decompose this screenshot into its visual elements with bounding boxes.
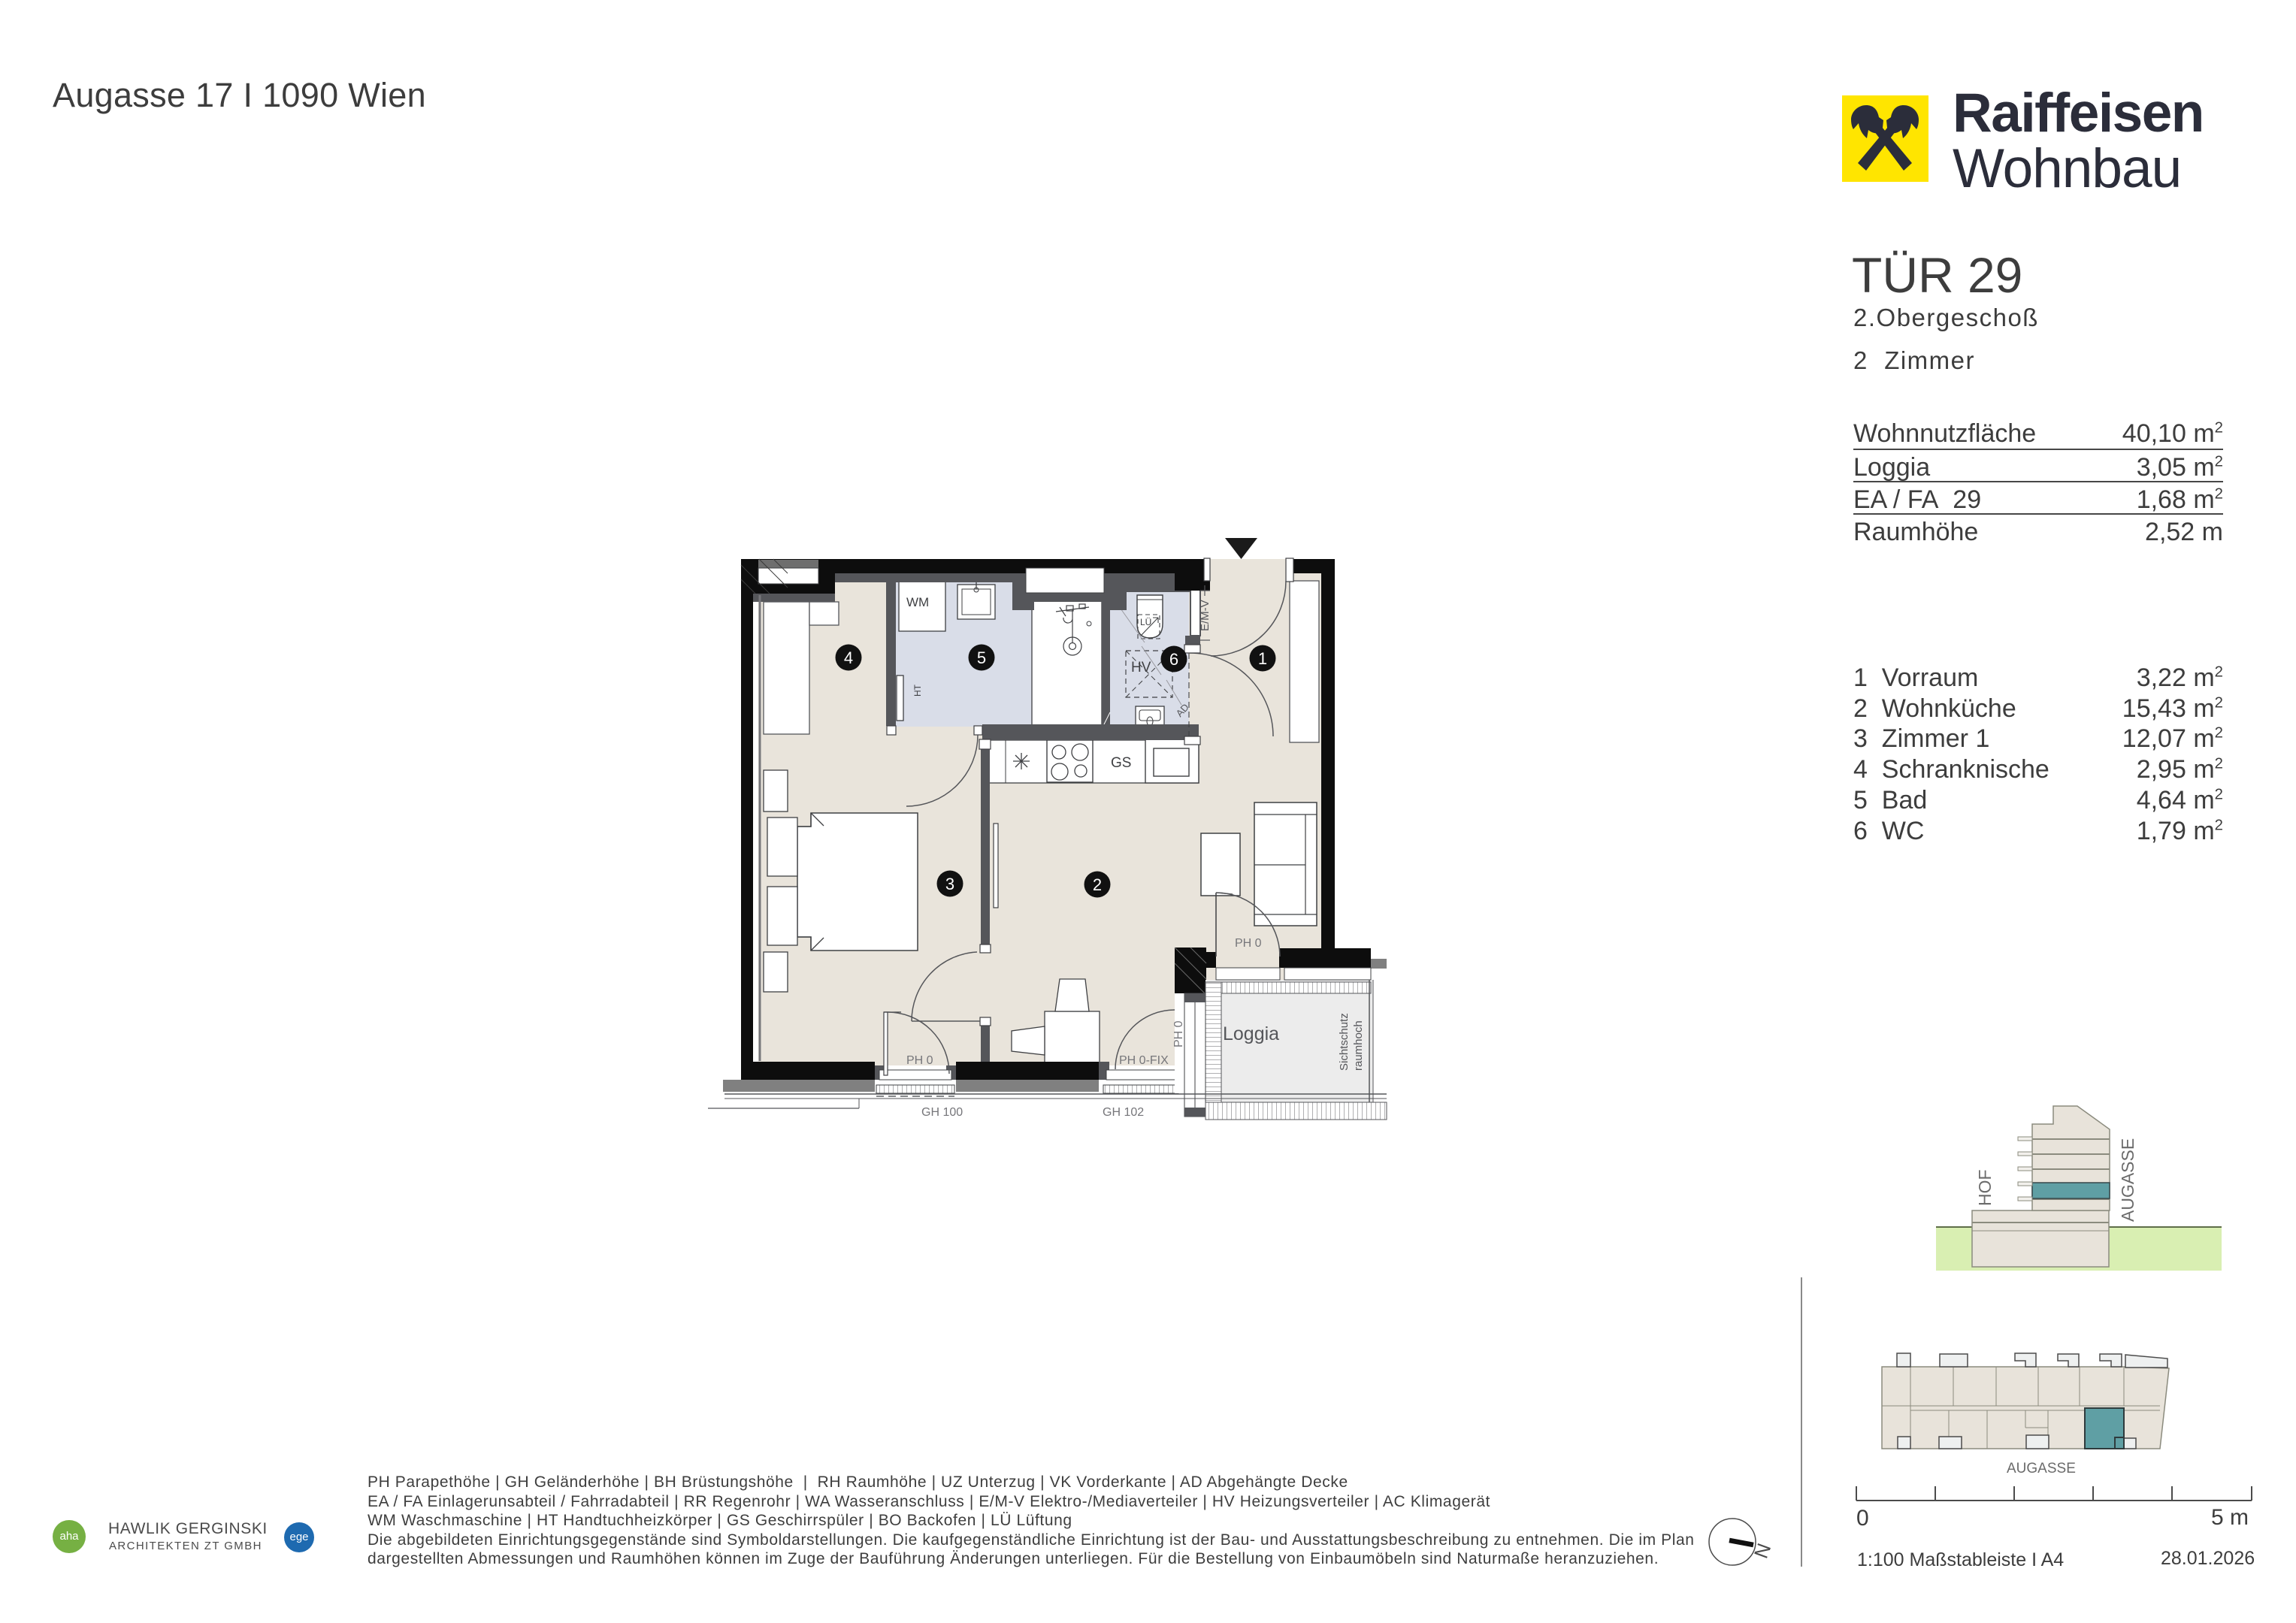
svg-text:HOF: HOF [1975, 1169, 1995, 1206]
svg-text:GH 100: GH 100 [921, 1106, 963, 1119]
svg-text:2: 2 [1093, 875, 1102, 894]
svg-text:3: 3 [945, 875, 954, 893]
svg-text:Wohnbau: Wohnbau [1953, 138, 2181, 190]
svg-text:Sichtschutz: Sichtschutz [1338, 1013, 1351, 1071]
svg-text:GS: GS [1111, 755, 1131, 771]
svg-text:1: 1 [1258, 649, 1267, 668]
svg-text:6: 6 [1169, 650, 1178, 669]
svg-text:Raiffeisen: Raiffeisen [1953, 89, 2204, 144]
svg-text:5 m: 5 m [2211, 1505, 2249, 1530]
svg-text:PH 0-FIX: PH 0-FIX [1119, 1054, 1169, 1067]
svg-text:Loggia: Loggia [1223, 1023, 1279, 1044]
svg-text:AUGASSE: AUGASSE [2118, 1138, 2137, 1222]
svg-text:HT: HT [912, 684, 923, 697]
svg-text:E/M-V: E/M-V [1199, 600, 1212, 631]
svg-text:HV: HV [1131, 660, 1151, 675]
svg-text:N: N [1750, 1540, 1776, 1561]
svg-text:GH 102: GH 102 [1103, 1106, 1144, 1119]
svg-text:PH 0: PH 0 [906, 1054, 933, 1067]
svg-text:1:100 Maßstableiste I A4: 1:100 Maßstableiste I A4 [1857, 1549, 2064, 1570]
svg-text:WM: WM [906, 595, 929, 609]
svg-text:PH 0: PH 0 [1172, 1020, 1185, 1047]
svg-text:LÜ: LÜ [1140, 617, 1151, 627]
svg-text:AUGASSE: AUGASSE [2007, 1461, 2076, 1476]
svg-text:4: 4 [844, 648, 853, 667]
svg-text:5: 5 [977, 648, 986, 667]
svg-text:raumhoch: raumhoch [1352, 1020, 1365, 1071]
svg-text:0: 0 [1856, 1506, 1869, 1531]
svg-text:PH 0: PH 0 [1235, 937, 1262, 950]
